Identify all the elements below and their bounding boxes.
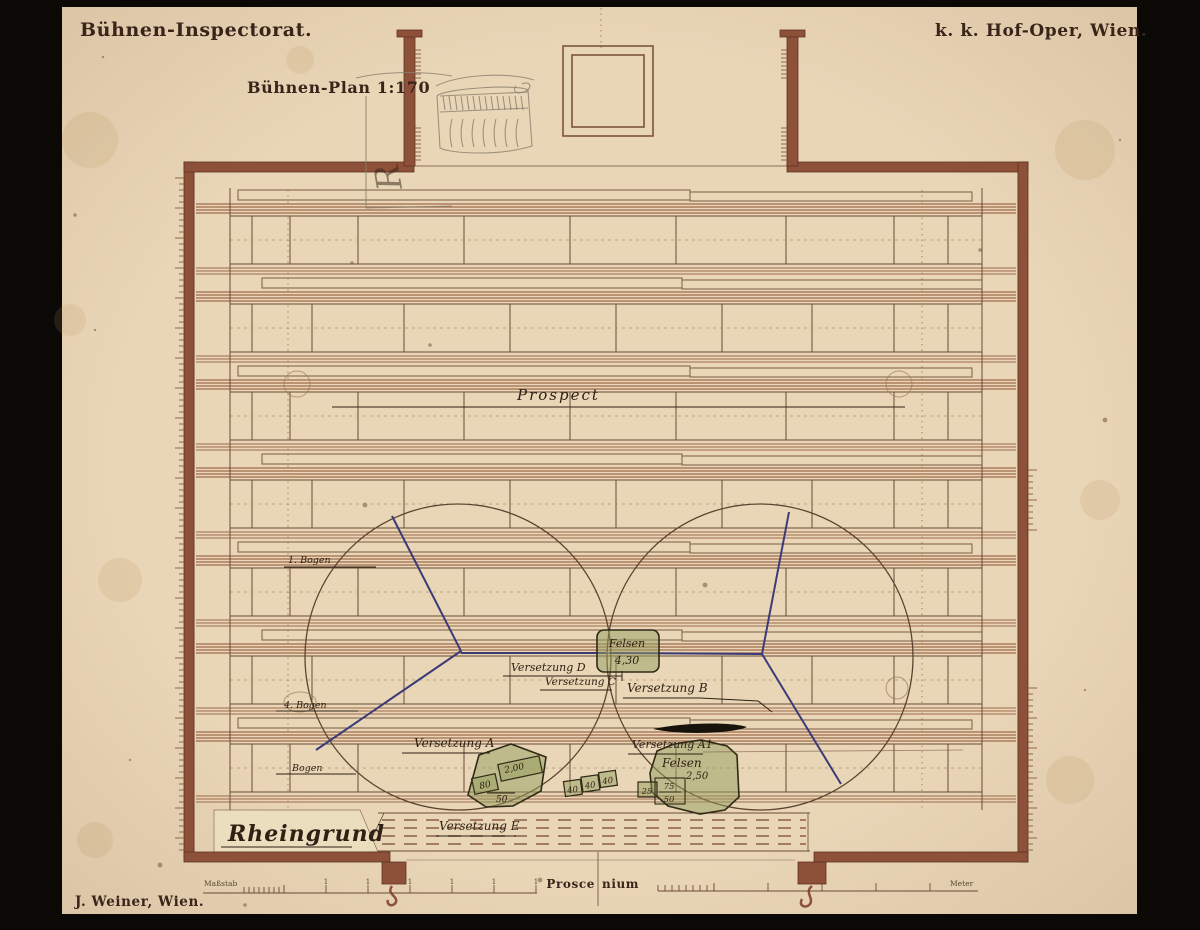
- header-right-title: k. k. Hof-Oper, Wien.: [935, 21, 1147, 41]
- versetzung-b-label: Versetzung B: [627, 681, 708, 695]
- scale-tick-label: 1: [450, 878, 454, 886]
- header-left-title: Bühnen-Inspectorat.: [80, 19, 312, 41]
- mid-box-value-1: 40: [566, 785, 580, 797]
- rock-right-n3: 50: [664, 795, 675, 805]
- felsen-box-value: 4,30: [614, 654, 640, 667]
- proscenium-label-right: nium: [602, 877, 639, 891]
- scale-tick-label: 1: [492, 878, 496, 886]
- felsen-right-title: Felsen: [661, 756, 702, 770]
- felsen-right-value: 2,50: [685, 771, 709, 782]
- mid-box-value-2: 40: [583, 780, 597, 792]
- versetzung-a-label: Versetzung A: [414, 736, 495, 750]
- bogen-label-1: 1. Bogen: [288, 555, 331, 566]
- proscenium-label-left: Prosce: [546, 877, 595, 891]
- scale-tick-label: 1: [534, 878, 538, 886]
- scale-tick-label: 1: [324, 878, 328, 886]
- rock-right-n2: 75: [664, 782, 675, 792]
- scale-tick-label: 1: [366, 878, 370, 886]
- versetzung-e-label: Versetzung E: [439, 819, 520, 833]
- bogen-label-4: 4. Bogen: [283, 700, 327, 711]
- versetzung-a1-label: Versetzung A1: [632, 738, 713, 751]
- versetzung-c-label: Versetzung C: [545, 676, 616, 688]
- plan-title: Bühnen-Plan 1:170: [247, 78, 430, 97]
- bogen-label-5: Bogen: [291, 763, 323, 774]
- versetzung-d-label: Versetzung D: [511, 661, 586, 674]
- mid-box-value-3: 40: [601, 776, 615, 788]
- felsen-box-title: Felsen: [608, 637, 645, 650]
- publisher-imprint: J. Weiner, Wien.: [74, 894, 204, 910]
- scale-tick-label: 1: [408, 878, 412, 886]
- rheingrund-label: Rheingrund: [227, 821, 385, 847]
- scale-left-label: Maßstab: [204, 879, 237, 888]
- rock-left-n3: 50: [496, 795, 508, 805]
- scale-right-label: Meter: [950, 879, 974, 888]
- prospect-label: Prospect: [516, 386, 600, 404]
- stage-plan-scan: R: [0, 0, 1200, 930]
- rock-right-n1: 25: [641, 787, 653, 797]
